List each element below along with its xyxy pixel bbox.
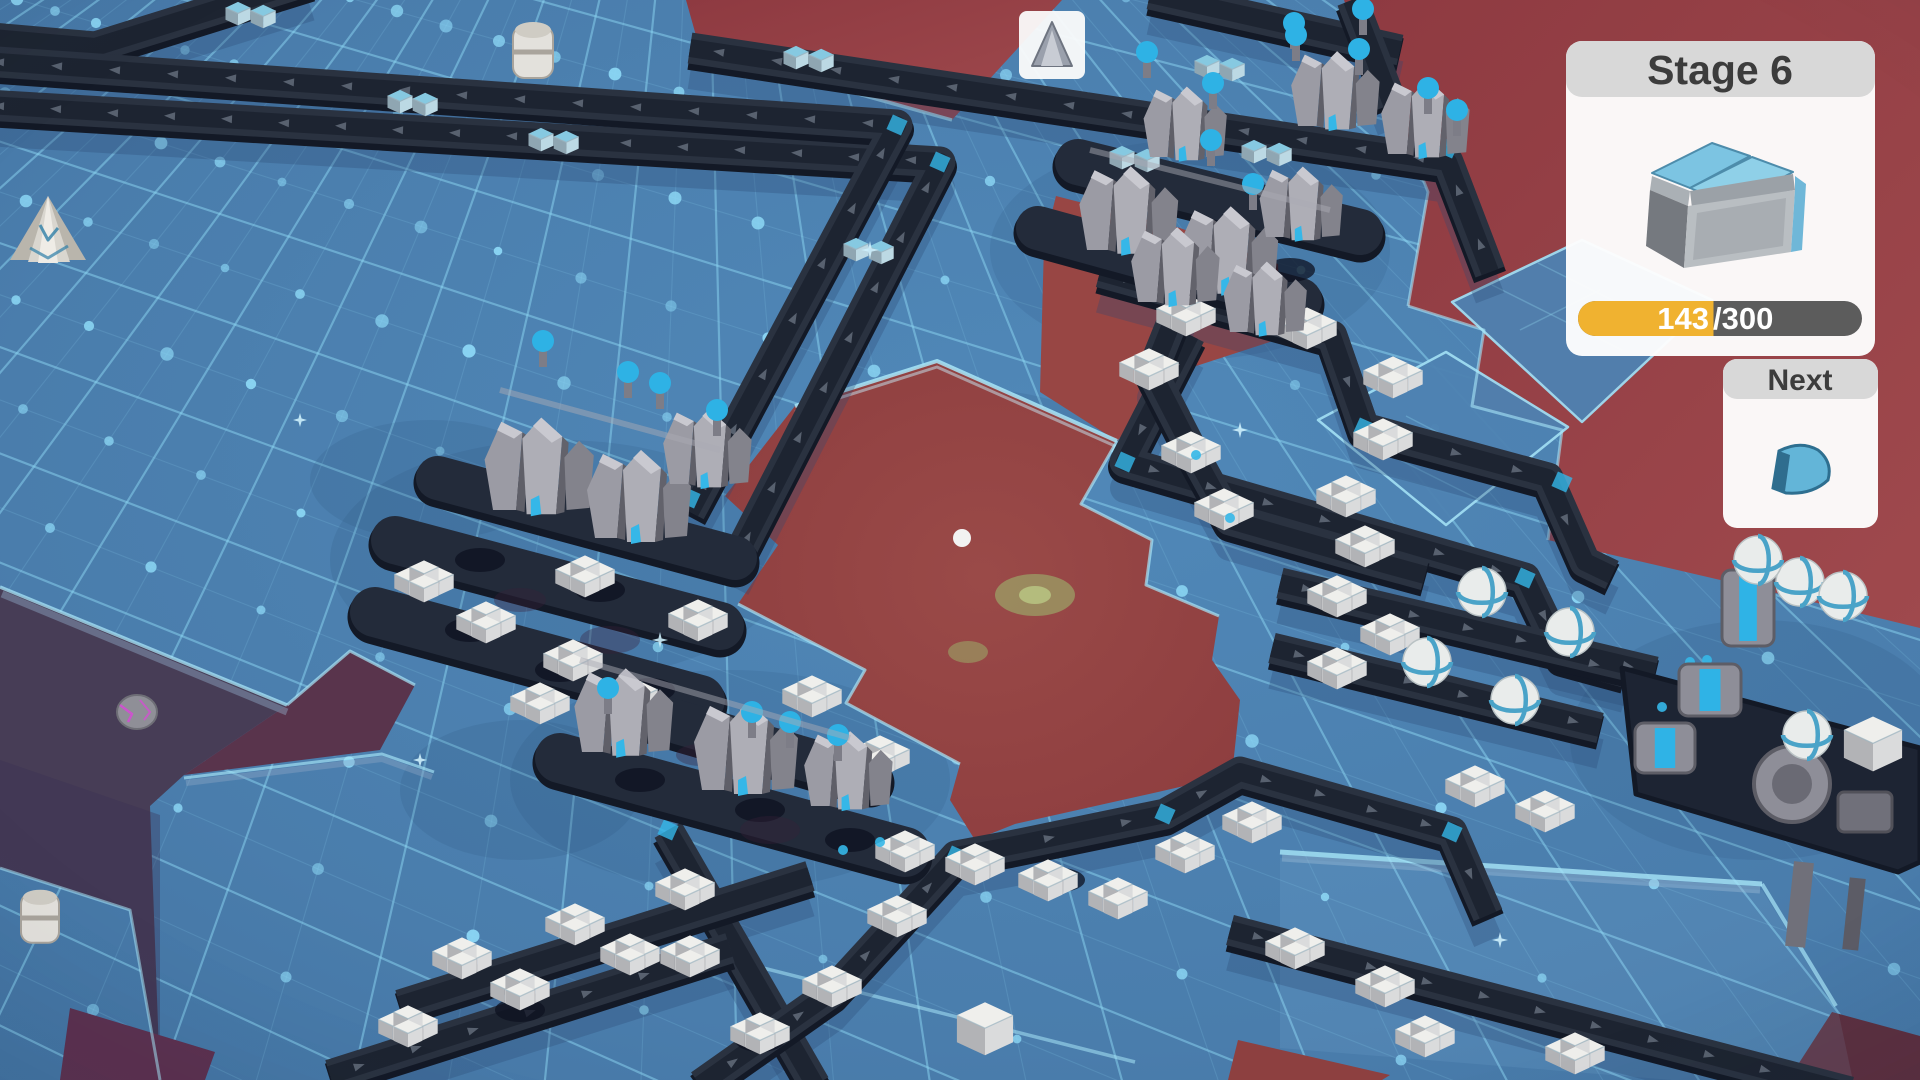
- svg-text:Next: Next: [1767, 364, 1832, 397]
- svg-text:Stage 6: Stage 6: [1647, 47, 1793, 93]
- svg-text:143: 143: [1657, 301, 1709, 336]
- svg-text:/300: /300: [1713, 301, 1773, 336]
